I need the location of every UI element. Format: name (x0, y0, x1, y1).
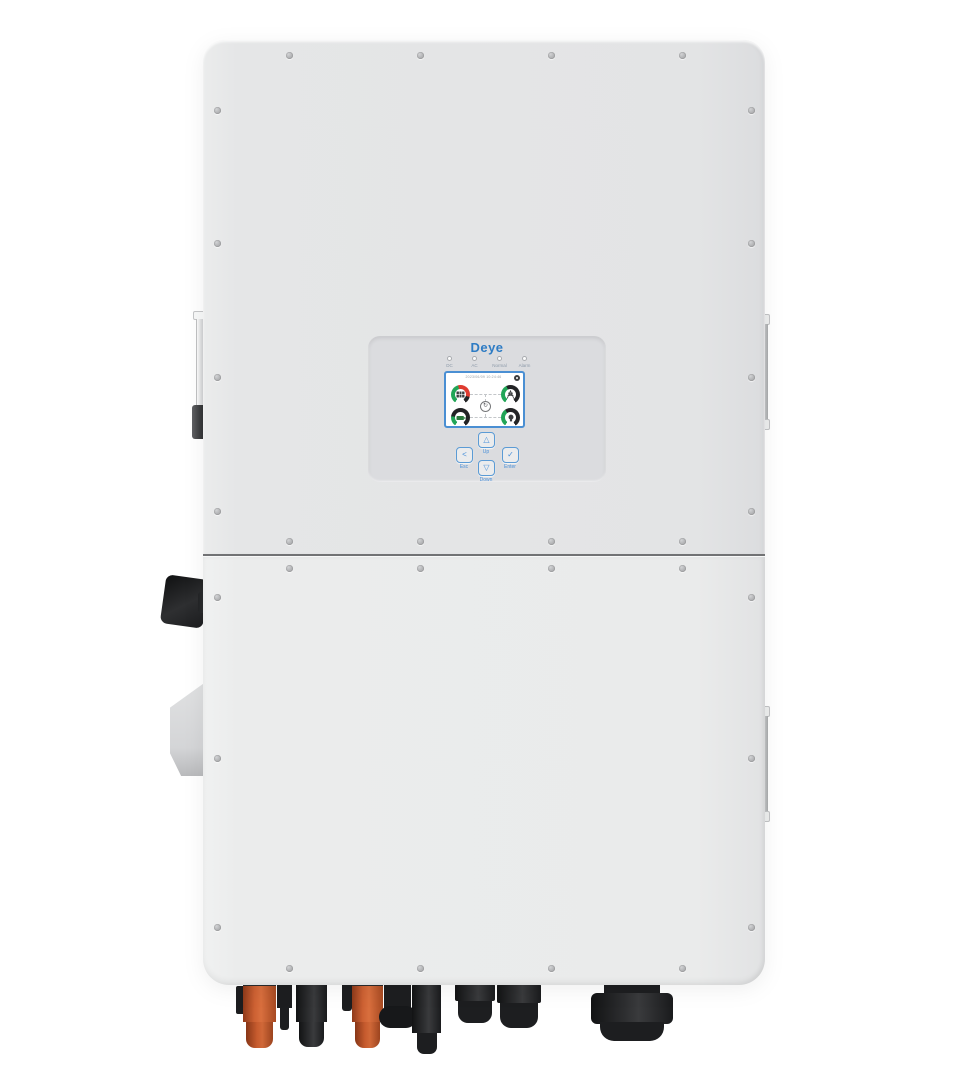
screw (548, 965, 555, 972)
screw (417, 538, 424, 545)
screw (548, 52, 555, 59)
connector-stub-1 (277, 984, 292, 1008)
led-ac: AC (462, 356, 487, 368)
mounting-bracket (170, 681, 207, 776)
screw (286, 52, 293, 59)
pv-connector-orange-1-tip (246, 1022, 273, 1048)
connector-stub-1-tip (280, 1008, 289, 1030)
cabinet-seam-highlight (203, 556, 765, 557)
pv-connector-orange-2-tip (355, 1022, 380, 1048)
control-panel: Deye DC AC Normal Alarm (368, 336, 606, 482)
screw (214, 508, 221, 515)
deye-logo: Deye (368, 340, 606, 355)
large-cable-gland (591, 993, 673, 1024)
led-dc-dot (447, 356, 452, 361)
flow-line (470, 417, 501, 418)
battery-icon (451, 408, 470, 427)
screw (679, 565, 686, 572)
down-button[interactable]: ▽ (478, 460, 495, 476)
settings-gear-icon[interactable] (514, 375, 520, 381)
led-alarm: Alarm (512, 356, 537, 368)
screw (679, 52, 686, 59)
screw (748, 924, 755, 931)
enter-button-label: Enter (495, 464, 525, 470)
grid-tower-icon (501, 385, 520, 404)
inverter-case: Deye DC AC Normal Alarm (203, 40, 765, 985)
screw (214, 924, 221, 931)
down-button-label: Down (471, 477, 501, 483)
led-row: DC AC Normal Alarm (368, 356, 606, 368)
screw (548, 565, 555, 572)
screw (214, 107, 221, 114)
inverter-center-node: ↻ (480, 401, 491, 412)
screw (417, 52, 424, 59)
esc-button-label: Esc (449, 464, 479, 470)
pv-connector-black-1-tip (299, 1022, 324, 1047)
gauge-battery (451, 408, 470, 427)
load-bulb-icon (501, 408, 520, 427)
status-bar-datetime: 2023/06/09 10:24:46 (456, 375, 511, 379)
pv-connector-black-2-tip (417, 1033, 437, 1054)
screw (214, 594, 221, 601)
led-dc: DC (437, 356, 462, 368)
pv-connector-black-2 (412, 984, 441, 1033)
led-alarm-dot (522, 356, 527, 361)
screw (548, 538, 555, 545)
screw (286, 538, 293, 545)
screw (748, 594, 755, 601)
gauge-grid (501, 385, 520, 404)
up-button-label: Up (471, 449, 501, 455)
large-gland-bottom (600, 1022, 664, 1041)
led-normal-dot (497, 356, 502, 361)
screw (748, 107, 755, 114)
gauge-pv (451, 385, 470, 404)
screw (679, 965, 686, 972)
screw (679, 538, 686, 545)
screw (286, 965, 293, 972)
lcd-screen: 2023/06/09 10:24:46 (444, 371, 525, 428)
screw (748, 374, 755, 381)
product-photo: Deye DC AC Normal Alarm (0, 0, 970, 1080)
cable-gland-1-nut (455, 984, 495, 1001)
pv-connector-black-1 (296, 983, 327, 1022)
lower-cabinet (203, 557, 765, 985)
cable-gland-1 (458, 1001, 492, 1023)
up-button[interactable]: △ (478, 432, 495, 448)
screw (214, 240, 221, 247)
led-normal: Normal (487, 356, 512, 368)
enter-button[interactable]: ✓ (502, 447, 519, 463)
screw (417, 965, 424, 972)
screw (748, 508, 755, 515)
cable-gland-2 (500, 1003, 538, 1028)
screw (417, 565, 424, 572)
gauge-load (501, 408, 520, 427)
screw (286, 565, 293, 572)
connector-stub-2 (342, 984, 352, 1011)
solar-panel-icon (451, 385, 470, 404)
screw (748, 755, 755, 762)
cable-gland-2-nut (497, 984, 541, 1003)
pv-connector-orange-1 (243, 983, 276, 1022)
led-ac-dot (472, 356, 477, 361)
screw (214, 374, 221, 381)
screw (748, 240, 755, 247)
left-handle-rod (196, 319, 203, 407)
screw (214, 755, 221, 762)
